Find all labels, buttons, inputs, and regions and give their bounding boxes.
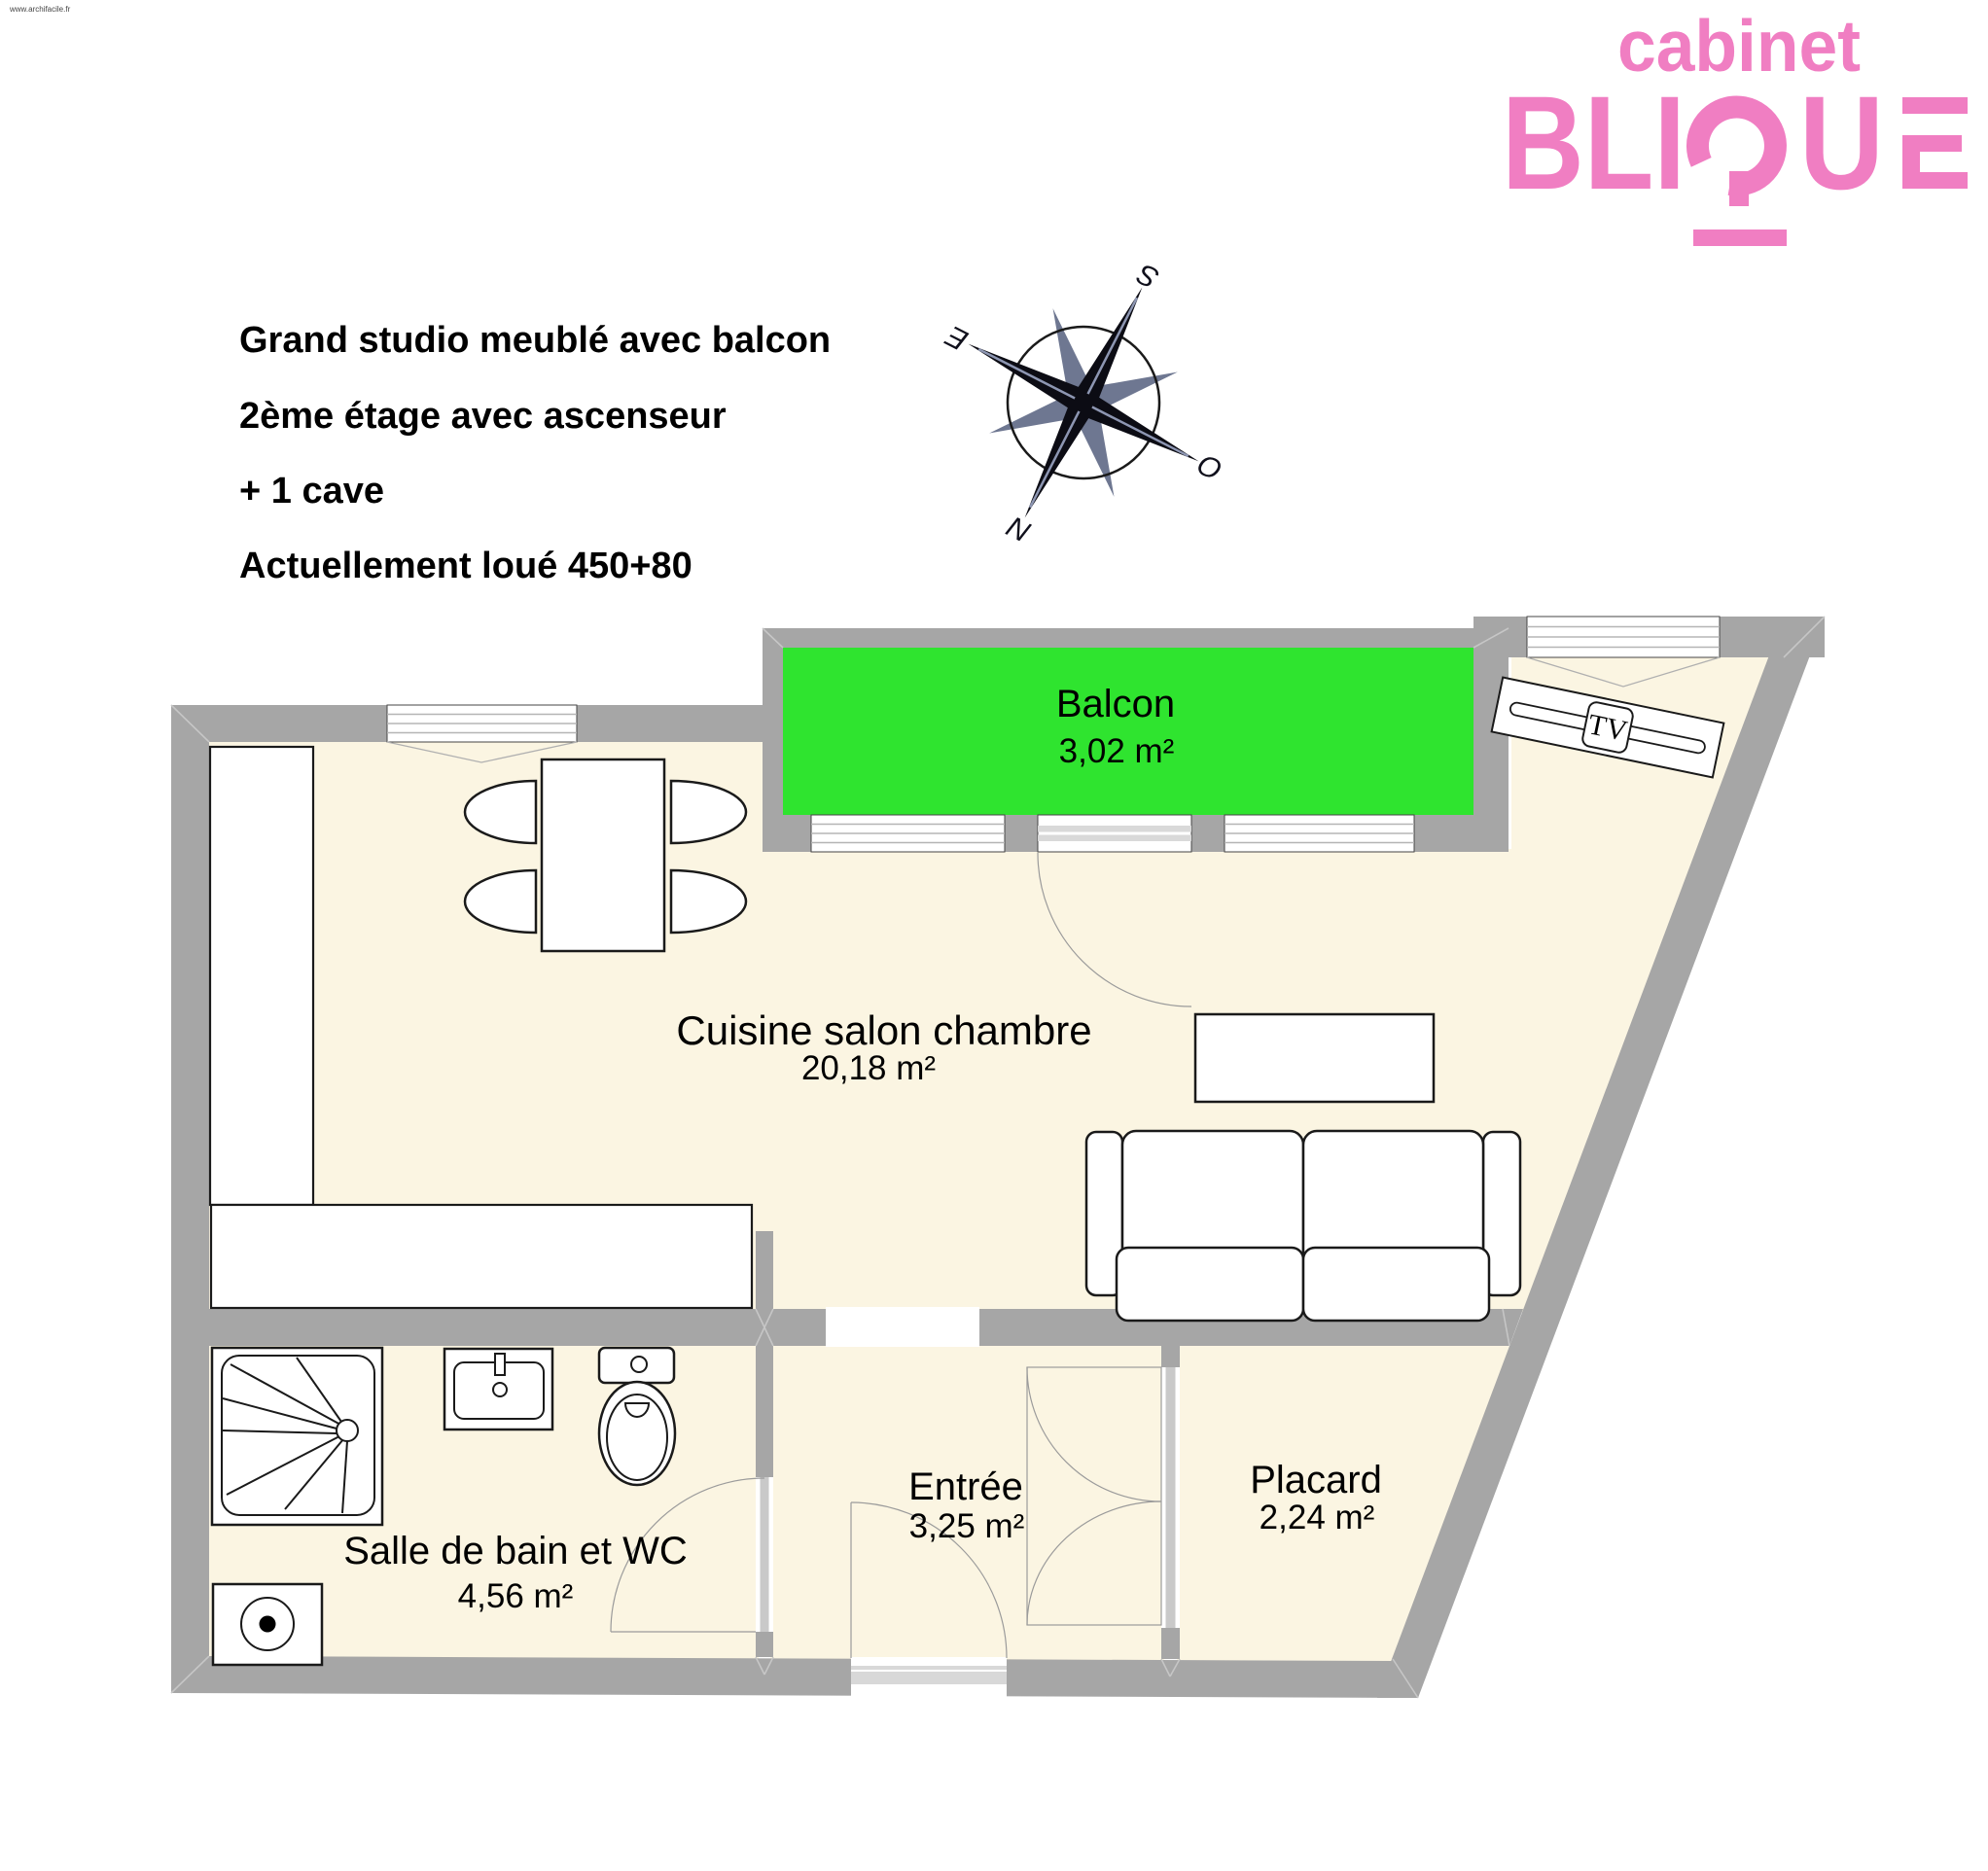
svg-text:Cuisine salon chambre: Cuisine salon chambre — [676, 1007, 1091, 1053]
svg-text:Placard: Placard — [1250, 1459, 1382, 1501]
svg-text:Balcon: Balcon — [1056, 683, 1175, 725]
svg-text:3,25 m²: 3,25 m² — [909, 1507, 1025, 1545]
svg-text:Actuellement loué 450+80: Actuellement loué 450+80 — [239, 546, 692, 586]
svg-text:+ 1 cave: + 1 cave — [239, 471, 384, 512]
svg-text:4,56 m²: 4,56 m² — [458, 1577, 574, 1615]
svg-text:BLI: BLI — [1502, 69, 1686, 218]
svg-text:Grand studio meublé avec balco: Grand studio meublé avec balcon — [239, 320, 831, 361]
svg-text:Salle de bain et WC: Salle de bain et WC — [343, 1530, 688, 1572]
svg-text:2,24 m²: 2,24 m² — [1260, 1499, 1375, 1536]
svg-text:www.archifacile.fr: www.archifacile.fr — [9, 5, 71, 14]
svg-text:Entrée: Entrée — [908, 1465, 1023, 1508]
svg-text:U: U — [1799, 69, 1884, 218]
svg-text:2ème étage avec ascenseur: 2ème étage avec ascenseur — [239, 396, 727, 437]
svg-text:3,02 m²: 3,02 m² — [1059, 732, 1175, 770]
svg-text:20,18 m²: 20,18 m² — [801, 1049, 936, 1087]
